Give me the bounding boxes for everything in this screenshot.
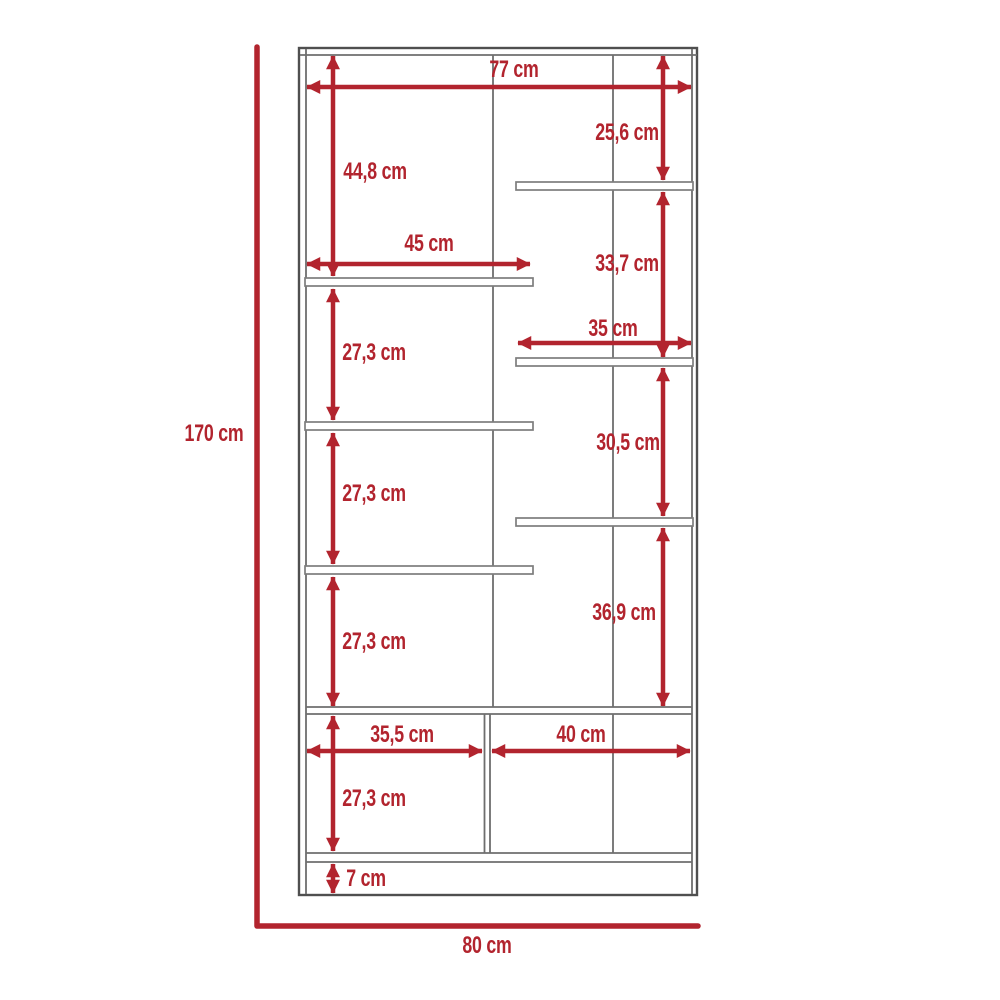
dim-label-right-gap-2: 33,7 cm: [595, 252, 659, 276]
shelf-right-1: [516, 182, 693, 190]
dim-label-upper-left-height: 44,8 cm: [343, 160, 407, 184]
shelf-left-2: [305, 422, 533, 430]
dim-label-overall-height: 170 cm: [185, 422, 244, 446]
dimension-diagram: 170 cm 80 cm 77 cm 44,8 cm 25,6 cm 45 cm…: [0, 0, 1000, 1000]
dim-label-bottom-left-height: 27,3 cm: [342, 787, 406, 811]
dim-label-left-gap-1: 27,3 cm: [342, 341, 406, 365]
dim-label-upper-right-height: 25,6 cm: [595, 121, 659, 145]
shelf-left-1: [305, 278, 533, 286]
dim-label-right-shelf-width: 35 cm: [588, 317, 637, 341]
shelf-right-3: [516, 518, 693, 526]
dim-label-right-gap-4: 36,9 cm: [592, 601, 656, 625]
shelf-right-2: [516, 358, 693, 366]
diagram-canvas: [0, 0, 1000, 1000]
dim-label-overall-width: 80 cm: [462, 934, 511, 958]
dim-label-left-gap-2: 27,3 cm: [342, 482, 406, 506]
dim-label-top-inner-width: 77 cm: [489, 58, 538, 82]
dim-label-bottom-left-width: 35,5 cm: [370, 723, 434, 747]
dim-label-base-height: 7 cm: [346, 867, 386, 891]
shelf-left-3: [305, 566, 533, 574]
dim-label-left-shelf-width: 45 cm: [404, 232, 453, 256]
dim-label-bottom-right-width: 40 cm: [556, 723, 605, 747]
dim-label-left-gap-3: 27,3 cm: [342, 630, 406, 654]
dim-label-right-gap-3: 30,5 cm: [596, 431, 660, 455]
